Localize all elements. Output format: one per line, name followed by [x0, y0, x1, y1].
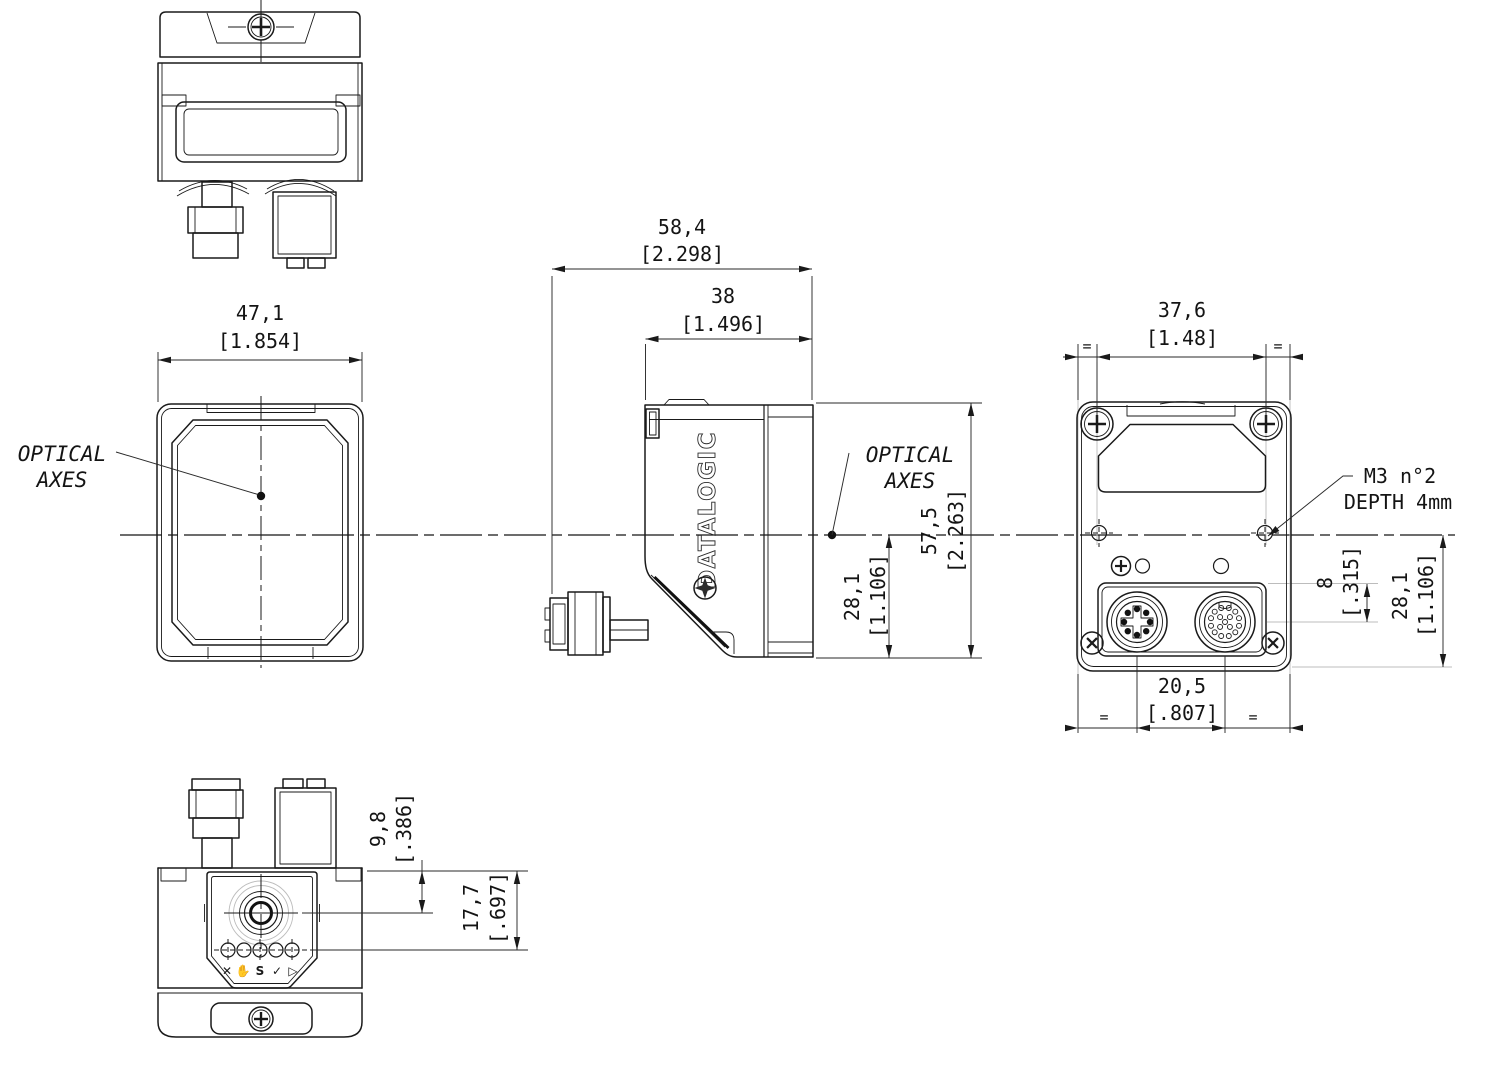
trigger-icon: ✋ [236, 964, 251, 978]
optical-axes-label-side-line2: AXES [883, 469, 936, 493]
dim-axis-to-bottom-rear: 28,1 [1.106] [1388, 535, 1446, 667]
ready-icon: ▷ [288, 964, 298, 978]
equal-mark-left-top: = [1082, 337, 1091, 355]
dim-connector-spacing: = = 20,5 [.807] [1065, 656, 1303, 733]
rear-display-window [1099, 425, 1266, 493]
optical-axes-label-side-line1: OPTICAL [866, 443, 955, 467]
dim-screw-spacing-inch: [1.48] [1146, 326, 1218, 350]
top-grip-arcs [177, 179, 336, 196]
front-window-outer [172, 420, 348, 645]
dim-step-to-connector-inch: [.315] [1339, 546, 1363, 618]
m3-leader [1268, 476, 1353, 536]
m12-power-connector [1107, 592, 1167, 652]
fail-icon: ✕ [222, 964, 232, 978]
dim-body-depth: 38 [1.496] [646, 284, 813, 400]
side-cable-connector [545, 592, 648, 655]
rear-hole-right [1214, 559, 1229, 574]
side-window-edge [646, 409, 659, 438]
m3-note-line2: DEPTH 4mm [1344, 490, 1452, 514]
front-view [116, 396, 363, 668]
optical-axes-leader-side [832, 453, 849, 535]
dim-front-width: 47,1 [1.854] [158, 301, 362, 402]
side-view: DATALOGIC [545, 400, 849, 658]
side-body-outline [645, 405, 813, 657]
top-display-window [176, 102, 346, 162]
optical-axes-label-front-line1: OPTICAL [18, 442, 107, 466]
dim-overall-depth-mm: 58,4 [658, 215, 706, 239]
top-left-ear [162, 95, 186, 106]
rect-connector-top-view [273, 192, 336, 268]
dim-overall-height-inch: [2.263] [944, 489, 968, 573]
bottom-left-ear [161, 868, 186, 881]
m3-note: M3 n°2 DEPTH 4mm [1268, 464, 1452, 536]
side-top-bump [664, 400, 709, 406]
dim-step-to-connector: 8 [.315] [1313, 546, 1370, 622]
equal-mark-right-top: = [1273, 337, 1282, 355]
top-display-window-inner [184, 109, 338, 155]
dim-front-width-mm: 47,1 [236, 301, 284, 325]
bottom-view: ✕ ✋ S ✓ ▷ [158, 779, 362, 1037]
rear-view [1076, 362, 1452, 730]
m3-hole-left [1085, 519, 1113, 547]
equal-mark-right-bottom: = [1248, 708, 1257, 726]
engineering-drawing-page: OPTICAL AXES 47,1 [1.854] [0, 0, 1500, 1071]
trigger-button [224, 874, 298, 956]
optical-axes-leader-front [116, 452, 258, 495]
front-window-inner [178, 426, 343, 640]
rear-ground-screw-icon [1112, 557, 1131, 576]
rear-hole-left [1136, 559, 1150, 573]
dim-body-depth-inch: [1.496] [681, 312, 765, 336]
dim-top-to-leds-inch: [.697] [486, 872, 510, 944]
dim-body-depth-mm: 38 [711, 284, 735, 308]
dim-front-width-inch: [1.854] [218, 329, 302, 353]
optical-axis-point-front [257, 492, 265, 500]
m3-note-line1: M3 n°2 [1364, 464, 1436, 488]
dim-top-to-button-inch: [.386] [392, 793, 416, 865]
top-right-ear [336, 95, 360, 106]
front-body-outline [157, 404, 363, 661]
bottom-right-ear [336, 868, 361, 881]
top-view [158, 0, 362, 268]
m12-io-connector [1195, 592, 1255, 652]
dim-step-to-connector-mm: 8 [1313, 577, 1337, 589]
optical-axes-label-front-line2: AXES [35, 468, 88, 492]
led-icon-row: ✕ ✋ S ✓ ▷ [222, 964, 298, 978]
m12-connector-bottom-view [189, 779, 243, 868]
dim-connector-spacing-inch: [.807] [1146, 701, 1218, 725]
phillips-screw-icon-bottom-view [249, 1007, 273, 1031]
dim-axis-to-bottom-rear-inch: [1.106] [1414, 553, 1438, 637]
datalogic-logo-text: DATALOGIC [695, 431, 721, 589]
top-body-outline [158, 63, 362, 181]
m12-connector-top-view [188, 182, 243, 258]
dimension-drawing-svg: OPTICAL AXES 47,1 [1.854] [0, 0, 1500, 1071]
status-icon: S [256, 964, 265, 978]
datalogic-star-icon [694, 577, 716, 599]
dim-axis-to-bottom-side-inch: [1.106] [866, 554, 890, 638]
dim-top-to-leds-mm: 17,7 [459, 884, 483, 932]
rect-connector-bottom-view [275, 779, 336, 868]
dim-screw-spacing-mm: 37,6 [1158, 298, 1206, 322]
dim-overall-height-mm: 57,5 [917, 507, 941, 555]
led-row [214, 939, 308, 961]
dim-top-to-button-mm: 9,8 [366, 811, 390, 847]
dim-axis-to-bottom-rear-mm: 28,1 [1388, 572, 1412, 620]
equal-mark-left-bottom: = [1099, 708, 1108, 726]
dim-top-to-leds: 17,7 [.697] [310, 871, 528, 950]
dim-axis-to-bottom-side-mm: 28,1 [840, 573, 864, 621]
dim-connector-spacing-mm: 20,5 [1158, 674, 1206, 698]
dim-overall-depth-inch: [2.298] [640, 242, 724, 266]
dim-axis-to-bottom-side: 28,1 [1.106] [840, 535, 892, 658]
good-icon: ✓ [272, 964, 282, 978]
